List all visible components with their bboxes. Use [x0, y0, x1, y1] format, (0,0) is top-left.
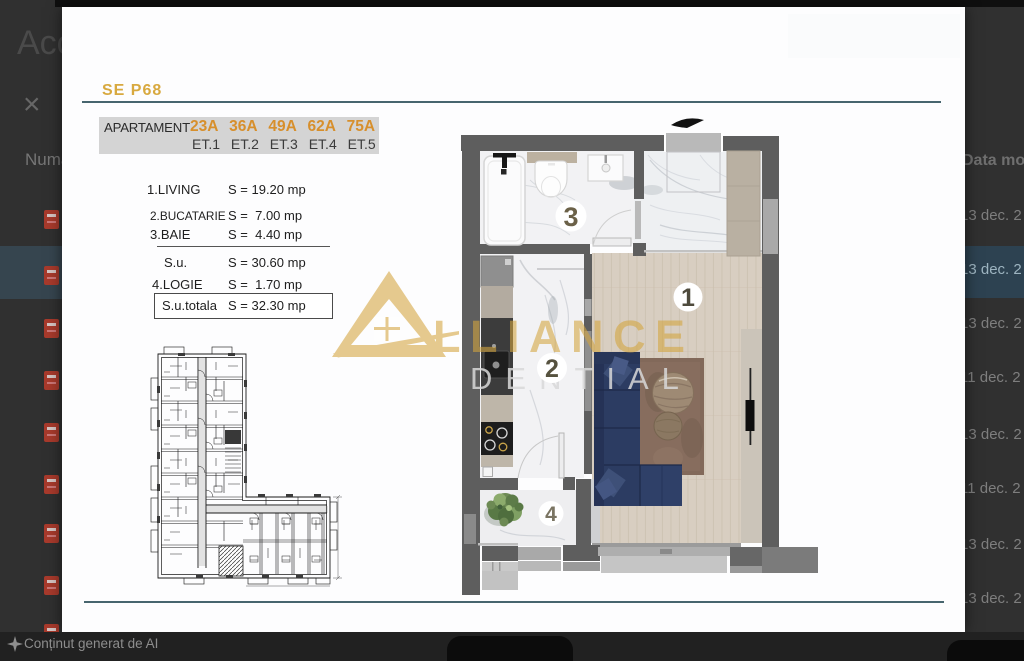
- svg-text:2: 2: [545, 355, 559, 383]
- svg-text:DENTIAL: DENTIAL: [470, 361, 692, 396]
- svg-text:3: 3: [563, 202, 578, 232]
- svg-text:4: 4: [545, 503, 557, 526]
- svg-text:LLIANCE: LLIANCE: [433, 311, 695, 362]
- svg-text:1: 1: [681, 284, 695, 312]
